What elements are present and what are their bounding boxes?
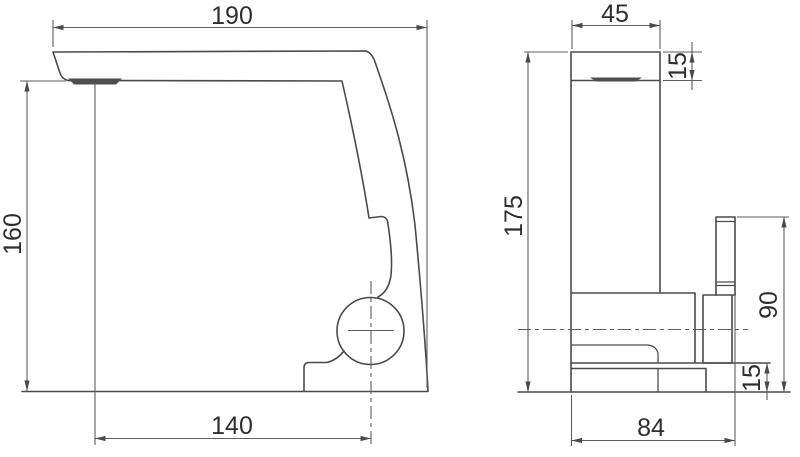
dim-label-160: 160: [0, 213, 27, 255]
faucet-front-outline: [518, 52, 790, 392]
side-view: 190 160 140: [0, 2, 428, 446]
front-view: 45 15 175 90 15 84: [500, 0, 790, 446]
dim-label-90: 90: [755, 291, 783, 319]
drawing-canvas: 190 160 140: [0, 0, 800, 457]
technical-drawing: 190 160 140: [0, 0, 800, 457]
dim-label-175: 175: [500, 195, 528, 237]
dim-label-15-bottom: 15: [738, 364, 766, 392]
aerator-front: [590, 78, 642, 82]
dimension-base-height: 15: [738, 363, 767, 400]
dim-label-190: 190: [211, 2, 253, 30]
dimension-overall-height: 175: [500, 52, 568, 392]
dimension-spout-section-height: 15: [663, 42, 702, 90]
dim-label-45: 45: [601, 0, 629, 28]
dim-label-140: 140: [211, 412, 253, 440]
dimension-height-to-spout: 160: [0, 81, 66, 391]
handle-blade: [716, 217, 735, 295]
handle-blade-details: [716, 222, 735, 286]
faucet-side-outline: [22, 51, 428, 392]
dim-label-84: 84: [637, 414, 665, 442]
dimension-body-width: 45: [572, 0, 660, 49]
dim-label-15-top: 15: [664, 52, 692, 80]
dimension-overall-depth: 84: [572, 295, 736, 446]
